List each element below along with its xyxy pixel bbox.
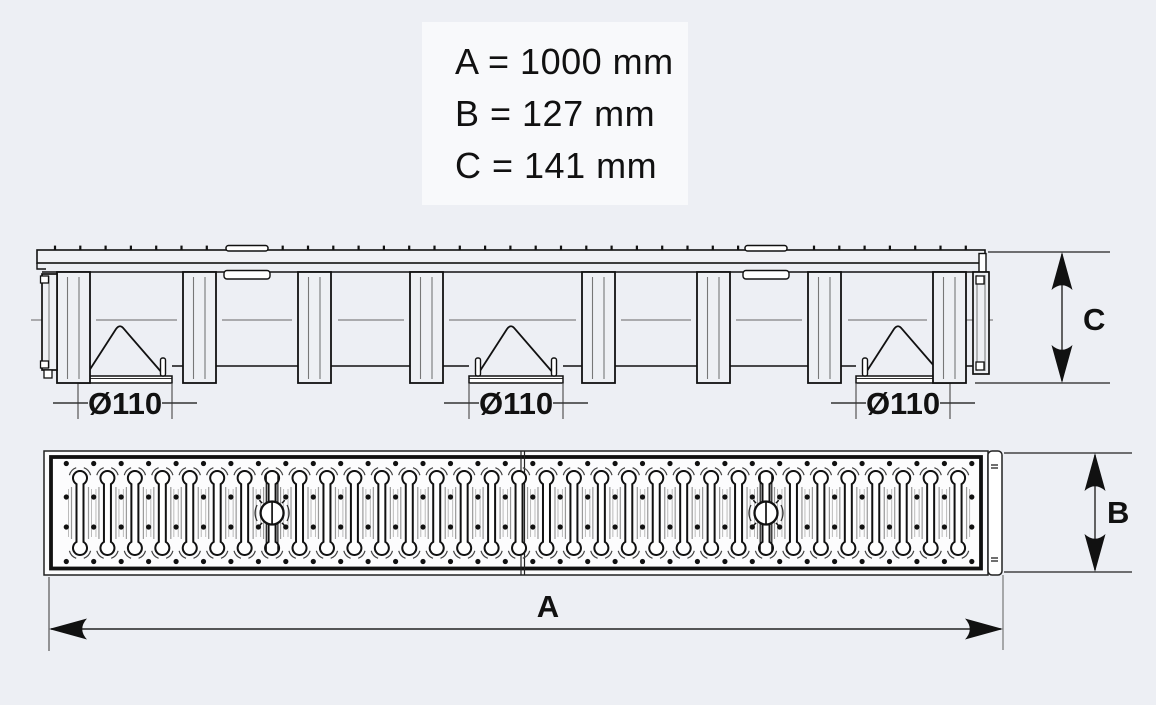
drawing-canvas: A = 1000 mm B = 127 mm C = 141 mm Ø110 Ø… — [0, 0, 1156, 705]
technical-drawing: Ø110 Ø110 Ø110 C B A — [0, 0, 1156, 705]
generated-drawing — [31, 246, 1132, 652]
outlet-diameter-label-1: Ø110 — [88, 386, 162, 421]
side-view-rail — [37, 246, 985, 280]
length-dimension-label: A — [537, 589, 559, 624]
dimension-a — [49, 575, 1003, 651]
side-view-legs — [57, 272, 966, 383]
outlet-diameter-label-3: Ø110 — [866, 386, 940, 421]
width-dimension-label: B — [1107, 495, 1129, 530]
side-view-body — [31, 272, 993, 366]
outlet-diameter-label-2: Ø110 — [479, 386, 553, 421]
height-dimension-label: C — [1083, 302, 1105, 337]
